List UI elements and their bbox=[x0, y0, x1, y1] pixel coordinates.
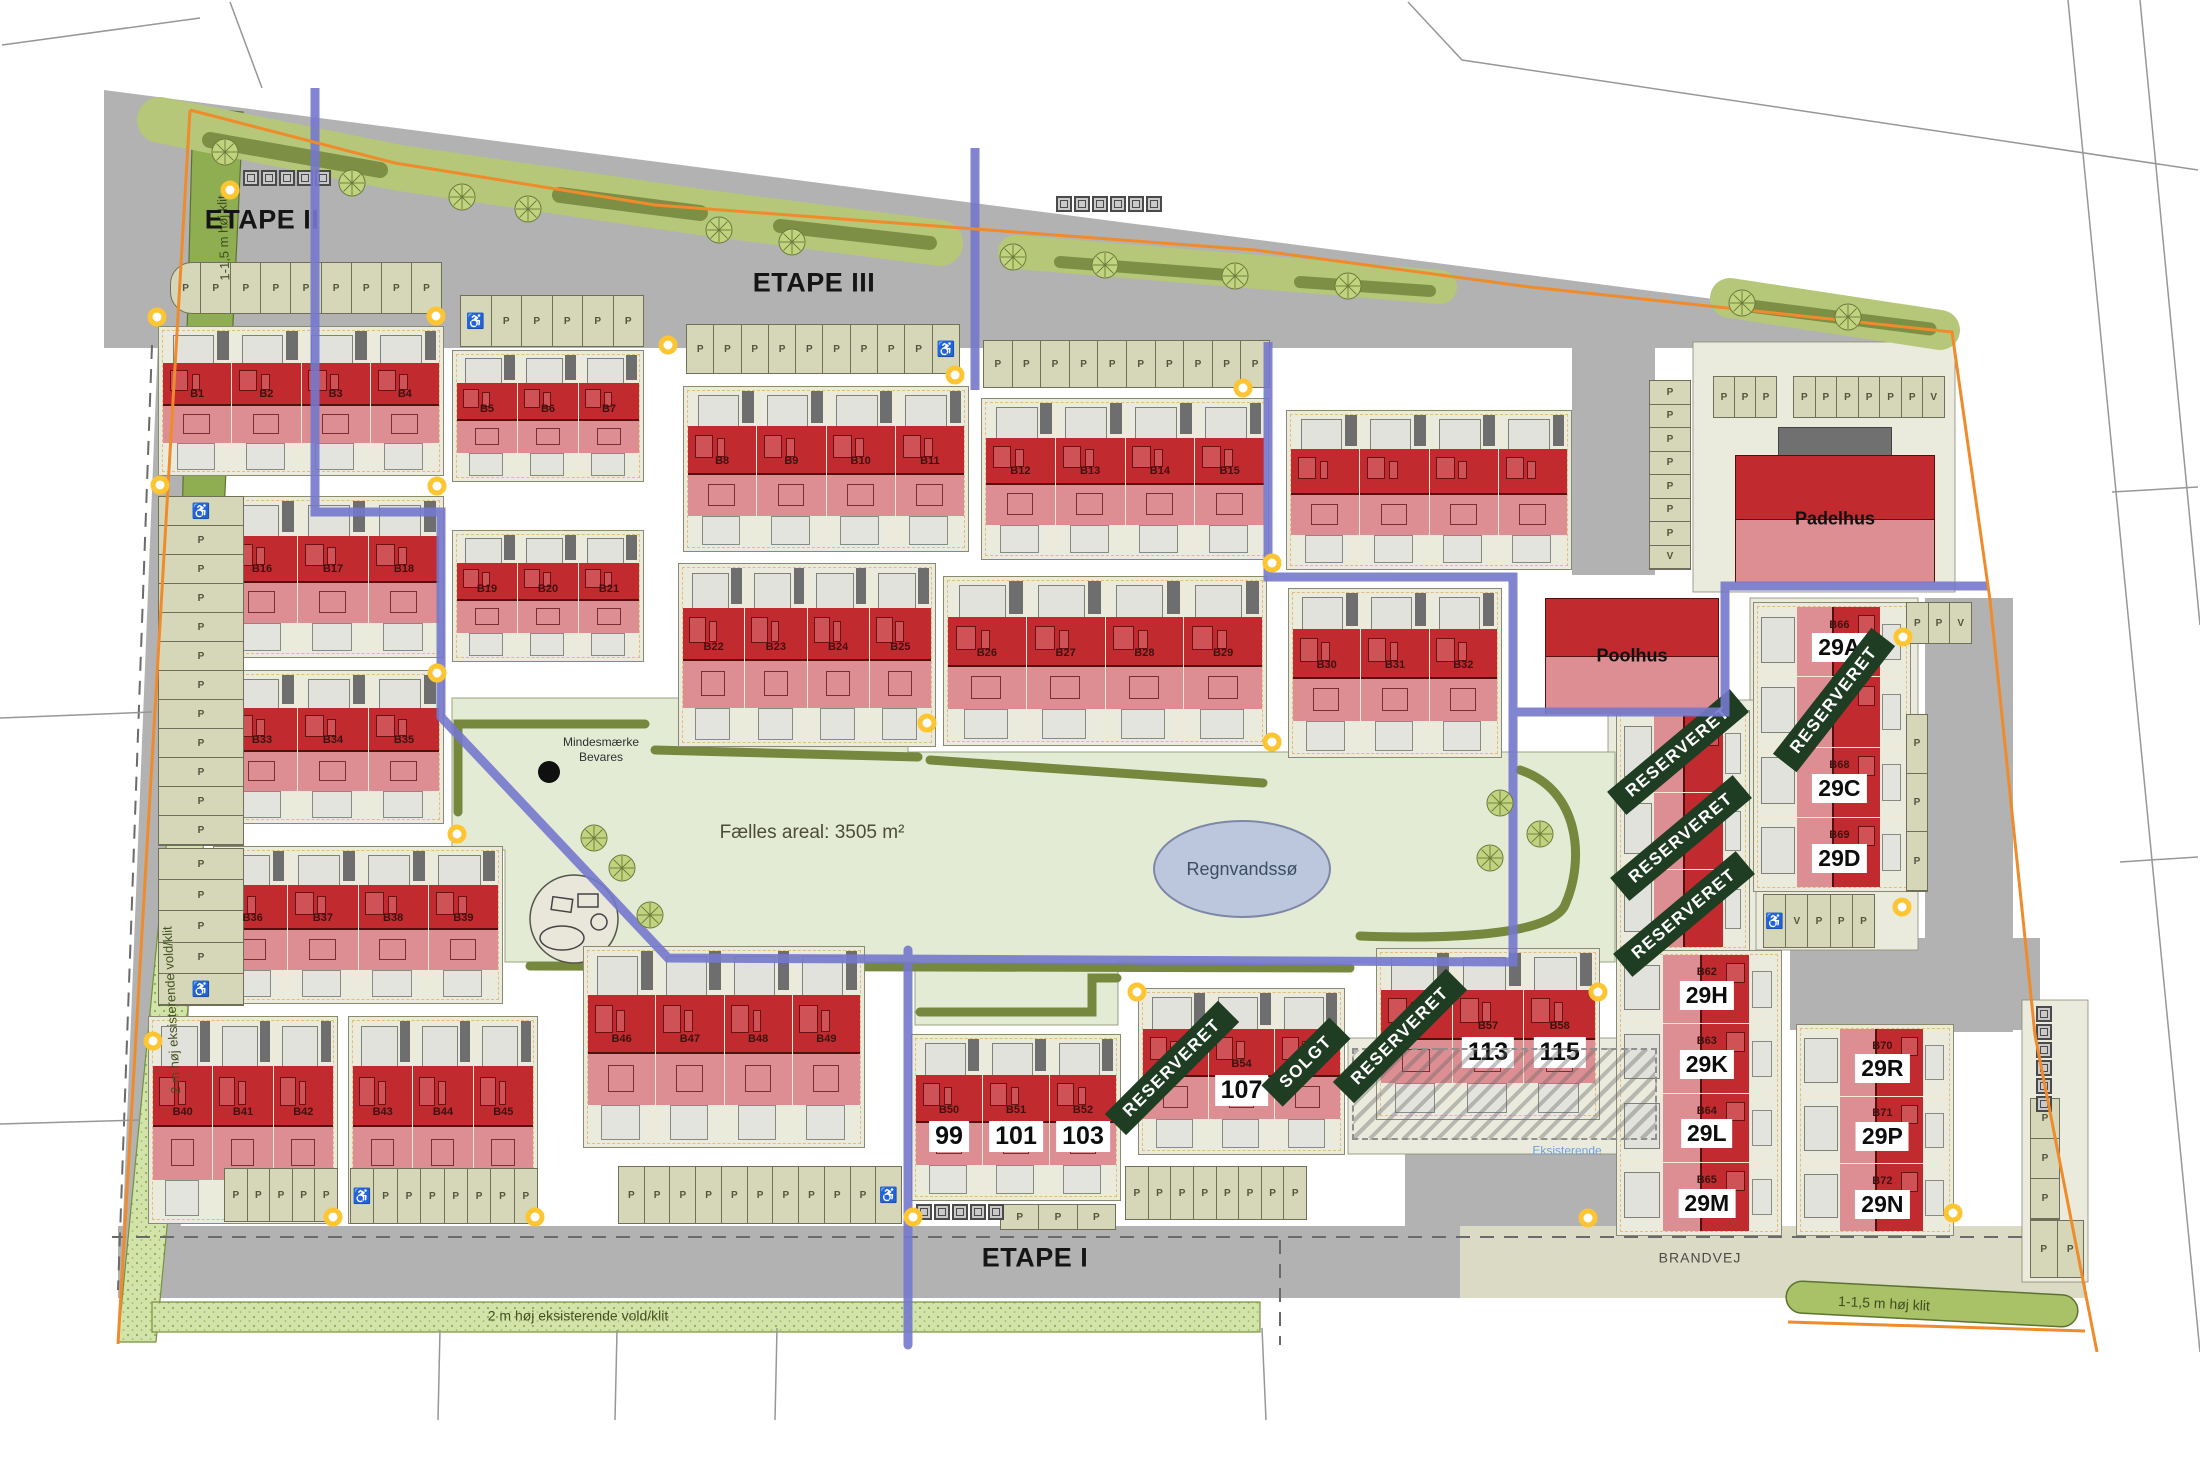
unit-garden-south bbox=[725, 1105, 792, 1143]
unit-roof-north bbox=[518, 383, 578, 421]
road-east bbox=[1925, 598, 2013, 1032]
parking-stall: P bbox=[398, 1169, 421, 1223]
unit-roof-north bbox=[518, 563, 578, 601]
unit-dormer bbox=[450, 939, 477, 960]
unit-garden bbox=[457, 355, 517, 383]
unit-dormer bbox=[888, 671, 912, 695]
unit-dormer bbox=[708, 484, 735, 506]
building-padelhus[interactable]: Padelhus bbox=[1735, 455, 1935, 583]
unit-entry bbox=[504, 355, 514, 380]
label-regnvandssoe: Regnvandssø bbox=[1186, 858, 1297, 881]
unit-dormer bbox=[475, 428, 499, 446]
unit-garden bbox=[298, 675, 368, 708]
label-brandvej: BRANDVEJ bbox=[1659, 1249, 1742, 1267]
parking-stall: P bbox=[159, 555, 243, 584]
unit-terrace-south bbox=[1200, 709, 1244, 739]
unit-roof-south bbox=[896, 475, 964, 517]
block-units: B1B2B3B4 bbox=[163, 331, 439, 471]
parking-stall: P bbox=[492, 296, 523, 346]
unit-entry bbox=[353, 675, 365, 704]
unit-skylight bbox=[1458, 461, 1467, 479]
building-unit: B30 bbox=[1293, 593, 1361, 753]
unit-terrace-south bbox=[1288, 1119, 1325, 1148]
waste-container-icon bbox=[1146, 196, 1162, 212]
unit-terrace-south bbox=[702, 516, 741, 545]
block-units: B36B37B38B39 bbox=[218, 851, 498, 999]
plate-29P[interactable]: 29P bbox=[1856, 1122, 1909, 1151]
unit-id-label: B49 bbox=[816, 1033, 836, 1045]
plate-29C[interactable]: 29C bbox=[1812, 774, 1866, 803]
unit-terrace-south bbox=[1070, 525, 1109, 553]
tree-icon bbox=[339, 170, 365, 196]
unit-id-label: B37 bbox=[313, 912, 333, 924]
plate-103[interactable]: 103 bbox=[1056, 1121, 1110, 1152]
parking-stall: P bbox=[2031, 1139, 2059, 1179]
building-unit: B39 bbox=[429, 851, 498, 999]
unit-terrace-north bbox=[698, 395, 740, 427]
parking-stall: P bbox=[823, 325, 850, 373]
parking-stall: P bbox=[515, 1169, 537, 1223]
unit-id-label: B23 bbox=[766, 641, 786, 653]
building-unit: B12 bbox=[986, 403, 1056, 555]
unit-skylight bbox=[1063, 446, 1082, 469]
unit-skylight bbox=[1011, 1087, 1020, 1106]
parking-strip: PPPPPPPPPP♿ bbox=[618, 1166, 902, 1224]
parking-stall: P bbox=[1650, 405, 1690, 429]
unit-id-label: B38 bbox=[383, 912, 403, 924]
parking-strip: ♿VPPP bbox=[1763, 894, 1875, 948]
unit-terrace-north bbox=[734, 956, 775, 996]
unit-garden-south bbox=[1275, 1119, 1340, 1150]
unit-entry bbox=[778, 951, 789, 990]
unit-id-label: B35 bbox=[394, 734, 414, 746]
unit-terrace-north bbox=[802, 956, 843, 996]
unit-skylight bbox=[717, 438, 726, 457]
parking-stall: P bbox=[1241, 341, 1269, 387]
unit-dormer bbox=[431, 1139, 454, 1166]
unit-id-label: B1 bbox=[190, 388, 204, 400]
unit-roof-south bbox=[518, 421, 578, 453]
unit-terrace-north bbox=[311, 335, 353, 364]
building-unit: B5 bbox=[457, 355, 518, 477]
unit-dormer bbox=[309, 939, 336, 960]
unit-garden bbox=[1923, 1029, 1949, 1096]
unit-id-label: B36 bbox=[243, 912, 263, 924]
unit-entry bbox=[918, 568, 928, 604]
plate-29R[interactable]: 29R bbox=[1855, 1054, 1909, 1083]
tree-icon bbox=[609, 855, 635, 881]
container-group bbox=[916, 1204, 1004, 1220]
unit-garden-south bbox=[298, 791, 368, 819]
parking-stall: P bbox=[1880, 377, 1902, 417]
parking-stall: P bbox=[468, 1169, 491, 1223]
unit-dormer bbox=[391, 414, 418, 434]
unit-terrace-south bbox=[383, 623, 423, 651]
unit-roof-south bbox=[1361, 679, 1428, 722]
unit-skylight bbox=[280, 1077, 296, 1106]
unit-id-label: B47 bbox=[680, 1033, 700, 1045]
unit-dormer bbox=[248, 761, 275, 781]
unit-entry bbox=[811, 391, 823, 423]
unit-id-label: B50 bbox=[939, 1104, 959, 1116]
unit-dormer bbox=[1311, 504, 1338, 525]
parking-stall: P bbox=[315, 1169, 337, 1221]
unit-skylight bbox=[295, 892, 314, 914]
building-unit: B2 bbox=[232, 331, 301, 471]
unit-dormer bbox=[745, 1065, 771, 1092]
unit-entry bbox=[200, 1021, 210, 1062]
unit-id-label: B21 bbox=[599, 583, 619, 595]
building-unit: B7129P bbox=[1801, 1097, 1949, 1165]
plate-29M[interactable]: 29M bbox=[1678, 1189, 1735, 1218]
building-unit: B28 bbox=[1106, 581, 1185, 741]
block-units: B33B34B35 bbox=[227, 675, 439, 819]
plate-99[interactable]: 99 bbox=[929, 1121, 969, 1152]
phase-label-etape-2: ETAPE II bbox=[205, 205, 320, 236]
building-block: B33B34B35 bbox=[222, 670, 444, 824]
unit-entry bbox=[425, 331, 437, 360]
unit-terrace-north bbox=[379, 679, 422, 709]
handicap-parking-stall: ♿ bbox=[876, 1167, 901, 1223]
unit-skylight bbox=[524, 389, 540, 408]
unit-terrace-south bbox=[591, 633, 625, 656]
building-unit: B38 bbox=[359, 851, 429, 999]
plate-29N[interactable]: 29N bbox=[1855, 1190, 1909, 1219]
parking-stall: P bbox=[159, 642, 243, 671]
unit-roof-south bbox=[302, 406, 370, 443]
parking-stall: P bbox=[159, 613, 243, 642]
parking-stall: P bbox=[159, 758, 243, 787]
unit-entry bbox=[1102, 1039, 1113, 1071]
building-unit: B3 bbox=[302, 331, 371, 471]
unit-terrace-north bbox=[1195, 585, 1242, 618]
building-unit: B19 bbox=[457, 535, 518, 657]
unit-garden bbox=[429, 851, 498, 885]
unit-roof-south bbox=[1499, 495, 1567, 535]
unit-garden-south bbox=[1126, 525, 1195, 555]
unit-terrace-north bbox=[308, 505, 351, 537]
waste-container-icon bbox=[1056, 196, 1072, 212]
parking-strip: PPPPPPPP bbox=[1125, 1166, 1307, 1220]
building-name-label: Padelhus bbox=[1795, 509, 1875, 530]
unit-skylight bbox=[376, 544, 395, 567]
unit-id-label: B2 bbox=[259, 388, 273, 400]
waste-container-icon bbox=[2036, 1006, 2052, 1022]
unit-dormer bbox=[1007, 493, 1034, 514]
unit-skylight bbox=[1202, 446, 1221, 469]
unit-id-label: B8 bbox=[715, 455, 729, 467]
parking-stall: P bbox=[1907, 603, 1929, 643]
parking-stall: P bbox=[1650, 522, 1690, 546]
unit-id-label: B44 bbox=[433, 1106, 453, 1118]
building-unit: B7229N bbox=[1801, 1164, 1949, 1231]
parking-stall: P bbox=[714, 325, 741, 373]
building-unit: B8 bbox=[688, 391, 757, 547]
parking-stall: P bbox=[1239, 1167, 1262, 1219]
unit-garden-south bbox=[1360, 535, 1428, 565]
unit-id-label: B48 bbox=[748, 1033, 768, 1045]
parking-stall: P bbox=[374, 1169, 397, 1223]
parking-stall: P bbox=[773, 1167, 799, 1223]
parking-stall: P bbox=[225, 1169, 248, 1221]
unit-garden bbox=[1056, 403, 1125, 438]
unit-terrace-north bbox=[666, 956, 707, 996]
handicap-parking-stall: ♿ bbox=[933, 325, 959, 373]
parking-stall: P bbox=[159, 671, 243, 700]
unit-terrace-north bbox=[379, 505, 422, 537]
unit-garden-south bbox=[1430, 535, 1498, 565]
parking-stall: P bbox=[248, 1169, 271, 1221]
unit-garden bbox=[1749, 955, 1777, 1023]
parking-strip: PPPPPPPPPP bbox=[983, 340, 1270, 388]
building-unit: B17 bbox=[298, 501, 369, 653]
unit-terrace-south bbox=[964, 709, 1008, 739]
unit-dormer bbox=[491, 1139, 514, 1166]
block-units: B46B47B48B49 bbox=[588, 951, 860, 1143]
unit-id-label: B71 bbox=[1872, 1107, 1892, 1119]
parking-stall: P bbox=[1217, 1167, 1240, 1219]
unit-garden bbox=[948, 581, 1026, 617]
unit-entry bbox=[424, 675, 436, 704]
building-unit: B29 bbox=[1184, 581, 1262, 741]
unit-terrace-south bbox=[241, 791, 281, 818]
unit-terrace-north bbox=[1284, 997, 1324, 1030]
tree-icon bbox=[1222, 263, 1248, 289]
plate-101[interactable]: 101 bbox=[989, 1121, 1043, 1152]
unit-terrace-north bbox=[482, 1026, 518, 1067]
unit-garden-south bbox=[948, 709, 1026, 741]
plate-29K[interactable]: 29K bbox=[1680, 1050, 1734, 1079]
unit-roof-north bbox=[1499, 449, 1567, 495]
unit-garden bbox=[1880, 818, 1906, 887]
unit-skylight bbox=[1192, 626, 1213, 650]
unit-garden bbox=[579, 355, 639, 383]
unit-terrace-south bbox=[601, 1105, 639, 1140]
unit-terrace-south bbox=[1222, 1119, 1259, 1148]
unit-entry bbox=[1035, 1039, 1046, 1071]
unit-id-label: B17 bbox=[323, 563, 343, 575]
road-brandvej bbox=[1460, 1226, 2086, 1298]
parking-stall: P bbox=[445, 1169, 468, 1223]
plate-107[interactable]: 107 bbox=[1215, 1075, 1269, 1106]
building-block: B8B9B10B11 bbox=[683, 386, 969, 552]
unit-garden bbox=[369, 675, 439, 708]
unit-terrace-north bbox=[1439, 419, 1481, 450]
plate-29D[interactable]: 29D bbox=[1812, 844, 1866, 873]
waste-container-icon bbox=[2036, 1024, 2052, 1040]
parking-stall: P bbox=[670, 1167, 696, 1223]
unit-terrace-south bbox=[165, 1180, 199, 1216]
unit-skylight bbox=[219, 1077, 235, 1106]
handicap-parking-stall: ♿ bbox=[351, 1169, 374, 1223]
unit-entry bbox=[856, 568, 866, 604]
parking-strip: PP bbox=[2030, 1220, 2084, 1278]
unit-skylight bbox=[1390, 642, 1399, 661]
unit-terrace-north bbox=[282, 1026, 318, 1067]
plate-29H[interactable]: 29H bbox=[1680, 981, 1734, 1010]
parking-stall: P bbox=[984, 341, 1013, 387]
unit-roof-south bbox=[153, 1127, 212, 1180]
unit-terrace-north bbox=[242, 335, 284, 364]
unit-garden-south bbox=[1184, 709, 1262, 741]
parking-stall: P bbox=[1213, 341, 1242, 387]
unit-skylight bbox=[1217, 630, 1227, 649]
unit-id-label: B43 bbox=[373, 1106, 393, 1118]
building-block: B26B27B28B29 bbox=[943, 576, 1267, 746]
unit-roof-north bbox=[1291, 449, 1359, 495]
building-unit: B20 bbox=[518, 535, 579, 657]
unit-entry bbox=[731, 568, 741, 604]
parking-stall: P bbox=[1126, 1167, 1149, 1219]
unit-skylight bbox=[499, 1081, 507, 1104]
parking-stall: V bbox=[1650, 546, 1690, 570]
unit-terrace-north bbox=[173, 335, 215, 364]
unit-terrace-north bbox=[992, 1043, 1032, 1076]
unit-roof-south bbox=[298, 752, 368, 790]
unit-terrace-south bbox=[1306, 721, 1344, 751]
building-block: B12B13B14B15 bbox=[981, 398, 1269, 560]
unit-id-label: B69 bbox=[1829, 829, 1849, 841]
unit-garden bbox=[757, 391, 825, 426]
building-unit: B52103 bbox=[1050, 1039, 1116, 1196]
unit-garden-south bbox=[457, 453, 517, 477]
parking-stall: P bbox=[796, 325, 823, 373]
unit-terrace bbox=[1758, 607, 1797, 676]
unit-roof-south bbox=[1291, 495, 1359, 535]
tree-icon bbox=[637, 902, 663, 928]
unit-skylight bbox=[903, 435, 921, 458]
parking-stall: V bbox=[1950, 603, 1971, 643]
unit-terrace-south bbox=[929, 1165, 967, 1194]
unit-garden bbox=[1195, 403, 1264, 438]
unit-skylight bbox=[1367, 457, 1385, 479]
unit-dormer bbox=[1313, 688, 1339, 710]
unit-roof-south bbox=[745, 661, 806, 707]
unit-skylight bbox=[595, 1005, 613, 1033]
unit-id-label: B3 bbox=[329, 388, 343, 400]
block-units: B8B9B10B11 bbox=[688, 391, 964, 547]
waste-container-icon bbox=[2036, 1078, 2052, 1094]
plate-29L[interactable]: 29L bbox=[1681, 1119, 1733, 1148]
tree-icon bbox=[581, 825, 607, 851]
unit-id-label: B7 bbox=[602, 403, 616, 415]
parking-strip: ♿PPPPPPP bbox=[350, 1168, 538, 1224]
unit-terrace-north bbox=[1059, 1043, 1099, 1076]
unit-garden bbox=[518, 535, 578, 563]
unit-id-label: B41 bbox=[233, 1106, 253, 1118]
unit-id-label: B9 bbox=[784, 455, 798, 467]
unit-id-label: B30 bbox=[1317, 659, 1337, 671]
unit-terrace-north bbox=[526, 538, 563, 564]
parking-stall: P bbox=[619, 1167, 645, 1223]
parking-stall: P bbox=[159, 816, 243, 845]
unit-garden bbox=[827, 391, 895, 426]
waste-container-icon bbox=[2036, 1060, 2052, 1076]
unit-entry bbox=[1088, 581, 1101, 614]
tree-icon bbox=[1000, 244, 1026, 270]
unit-entry bbox=[709, 951, 720, 990]
unit-id-label: B72 bbox=[1872, 1175, 1892, 1187]
unit-skylight bbox=[359, 1077, 375, 1106]
unit-garden-south bbox=[983, 1165, 1049, 1196]
unit-terrace-north bbox=[925, 1043, 965, 1076]
unit-roof-south bbox=[1430, 495, 1498, 535]
unit-terrace-north bbox=[1439, 597, 1480, 630]
unit-terrace-south bbox=[530, 633, 564, 656]
unit-id-label: B18 bbox=[394, 563, 414, 575]
unit-skylight bbox=[308, 370, 326, 391]
parking-stall: P bbox=[583, 296, 614, 346]
block-units: B19B20B21 bbox=[457, 535, 639, 657]
parking-stall: P bbox=[382, 263, 412, 313]
unit-skylight bbox=[438, 1081, 446, 1104]
unit-dormer bbox=[1382, 688, 1408, 710]
unit-terrace-south bbox=[1305, 535, 1344, 563]
unit-skylight bbox=[1482, 1002, 1491, 1021]
unit-entry bbox=[273, 851, 285, 881]
unit-id-label: B51 bbox=[1006, 1104, 1026, 1116]
unit-entry bbox=[1414, 415, 1426, 446]
unit-dormer bbox=[608, 1065, 634, 1092]
unit-garden-south bbox=[1293, 721, 1360, 753]
parking-stall: P bbox=[1735, 377, 1756, 417]
streetlight-dot bbox=[153, 478, 167, 492]
building-block bbox=[1286, 410, 1572, 570]
unit-entry bbox=[1415, 593, 1426, 626]
unit-terrace bbox=[1621, 1163, 1663, 1231]
parking-stall: P bbox=[614, 296, 644, 346]
unit-skylight bbox=[993, 446, 1012, 469]
unit-roof-south bbox=[457, 421, 517, 453]
building-unit bbox=[1360, 415, 1429, 565]
unit-dormer bbox=[390, 761, 417, 781]
unit-terrace-north bbox=[754, 573, 792, 609]
unit-roof-south bbox=[429, 930, 498, 969]
parking-stall: P bbox=[1194, 1167, 1217, 1219]
parking-strip: PPV bbox=[1906, 602, 1972, 644]
unit-garden-south bbox=[870, 708, 931, 742]
building-poolhus[interactable]: Poolhus bbox=[1545, 598, 1719, 714]
building-unit: B7 bbox=[579, 355, 639, 477]
unit-roof-south bbox=[1293, 679, 1360, 722]
unit-skylight bbox=[1460, 998, 1479, 1022]
unit-garden bbox=[1524, 953, 1595, 990]
unit-skylight bbox=[170, 370, 188, 391]
unit-roof-south bbox=[288, 930, 357, 969]
unit-terrace-south bbox=[1000, 525, 1039, 553]
building-unit: B4 bbox=[371, 331, 439, 471]
unit-terrace-north bbox=[1065, 407, 1107, 439]
unit-roof-south bbox=[163, 406, 231, 443]
parking-stall: P bbox=[270, 1169, 293, 1221]
streetlight-dot bbox=[430, 479, 444, 493]
unit-roof-south bbox=[1195, 485, 1264, 526]
unit-terrace-south bbox=[1121, 709, 1165, 739]
waste-container-icon bbox=[279, 170, 295, 186]
container-group bbox=[2036, 1006, 2052, 1112]
block-units: B7029RB7129PB7229N bbox=[1801, 1029, 1949, 1231]
unit-terrace-south bbox=[312, 791, 352, 818]
unit-skylight bbox=[1059, 630, 1069, 649]
parking-stall: P bbox=[352, 263, 382, 313]
parking-stall: P bbox=[1039, 1205, 1077, 1229]
tree-icon bbox=[1527, 821, 1553, 847]
unit-roof-south bbox=[371, 406, 439, 443]
unit-terrace-south bbox=[820, 708, 855, 740]
parking-stall: P bbox=[1156, 341, 1185, 387]
unit-entry bbox=[460, 1021, 470, 1062]
unit-terrace-south bbox=[372, 970, 411, 998]
